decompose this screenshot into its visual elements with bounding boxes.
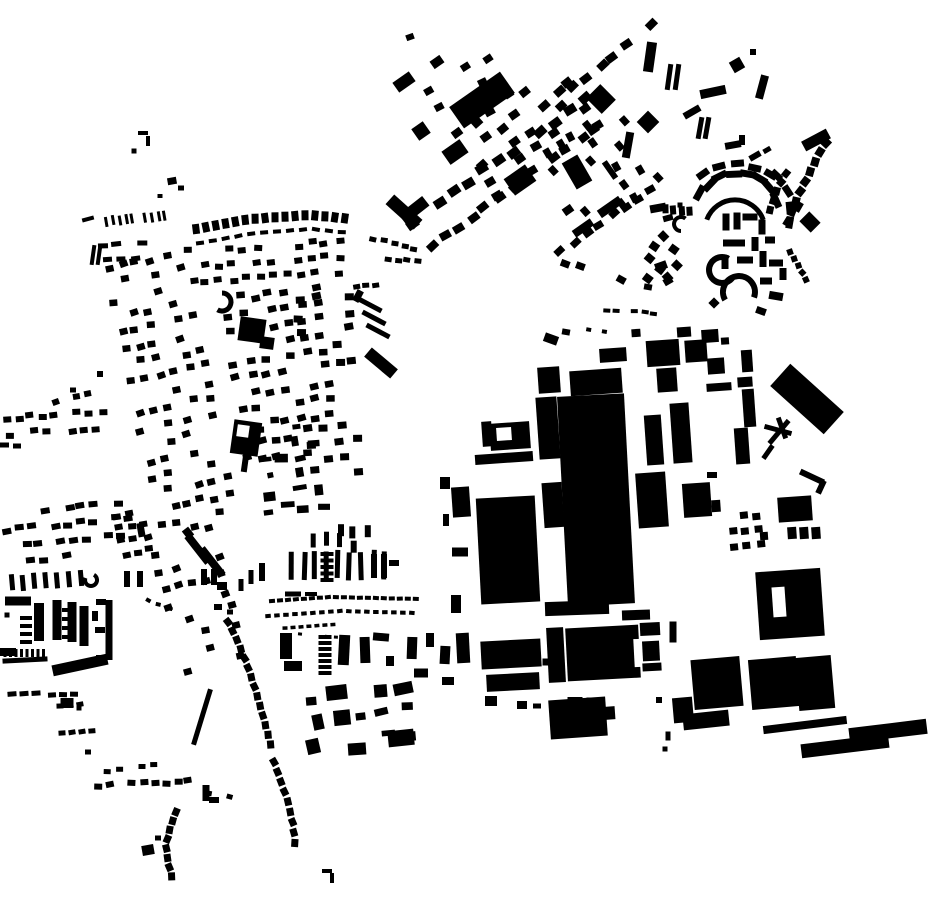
region-hamlet-far-west [0, 371, 107, 618]
region-outskirts-south [56, 698, 233, 881]
figure-ground-map [0, 0, 930, 924]
region-village-north [392, 18, 769, 334]
region-estate-far-southwest [0, 501, 153, 698]
region-curved-estate-northeast [642, 129, 832, 316]
region-industrial-east [440, 327, 928, 759]
building-footprints-canvas [0, 0, 930, 924]
region-residential-west [82, 131, 423, 676]
